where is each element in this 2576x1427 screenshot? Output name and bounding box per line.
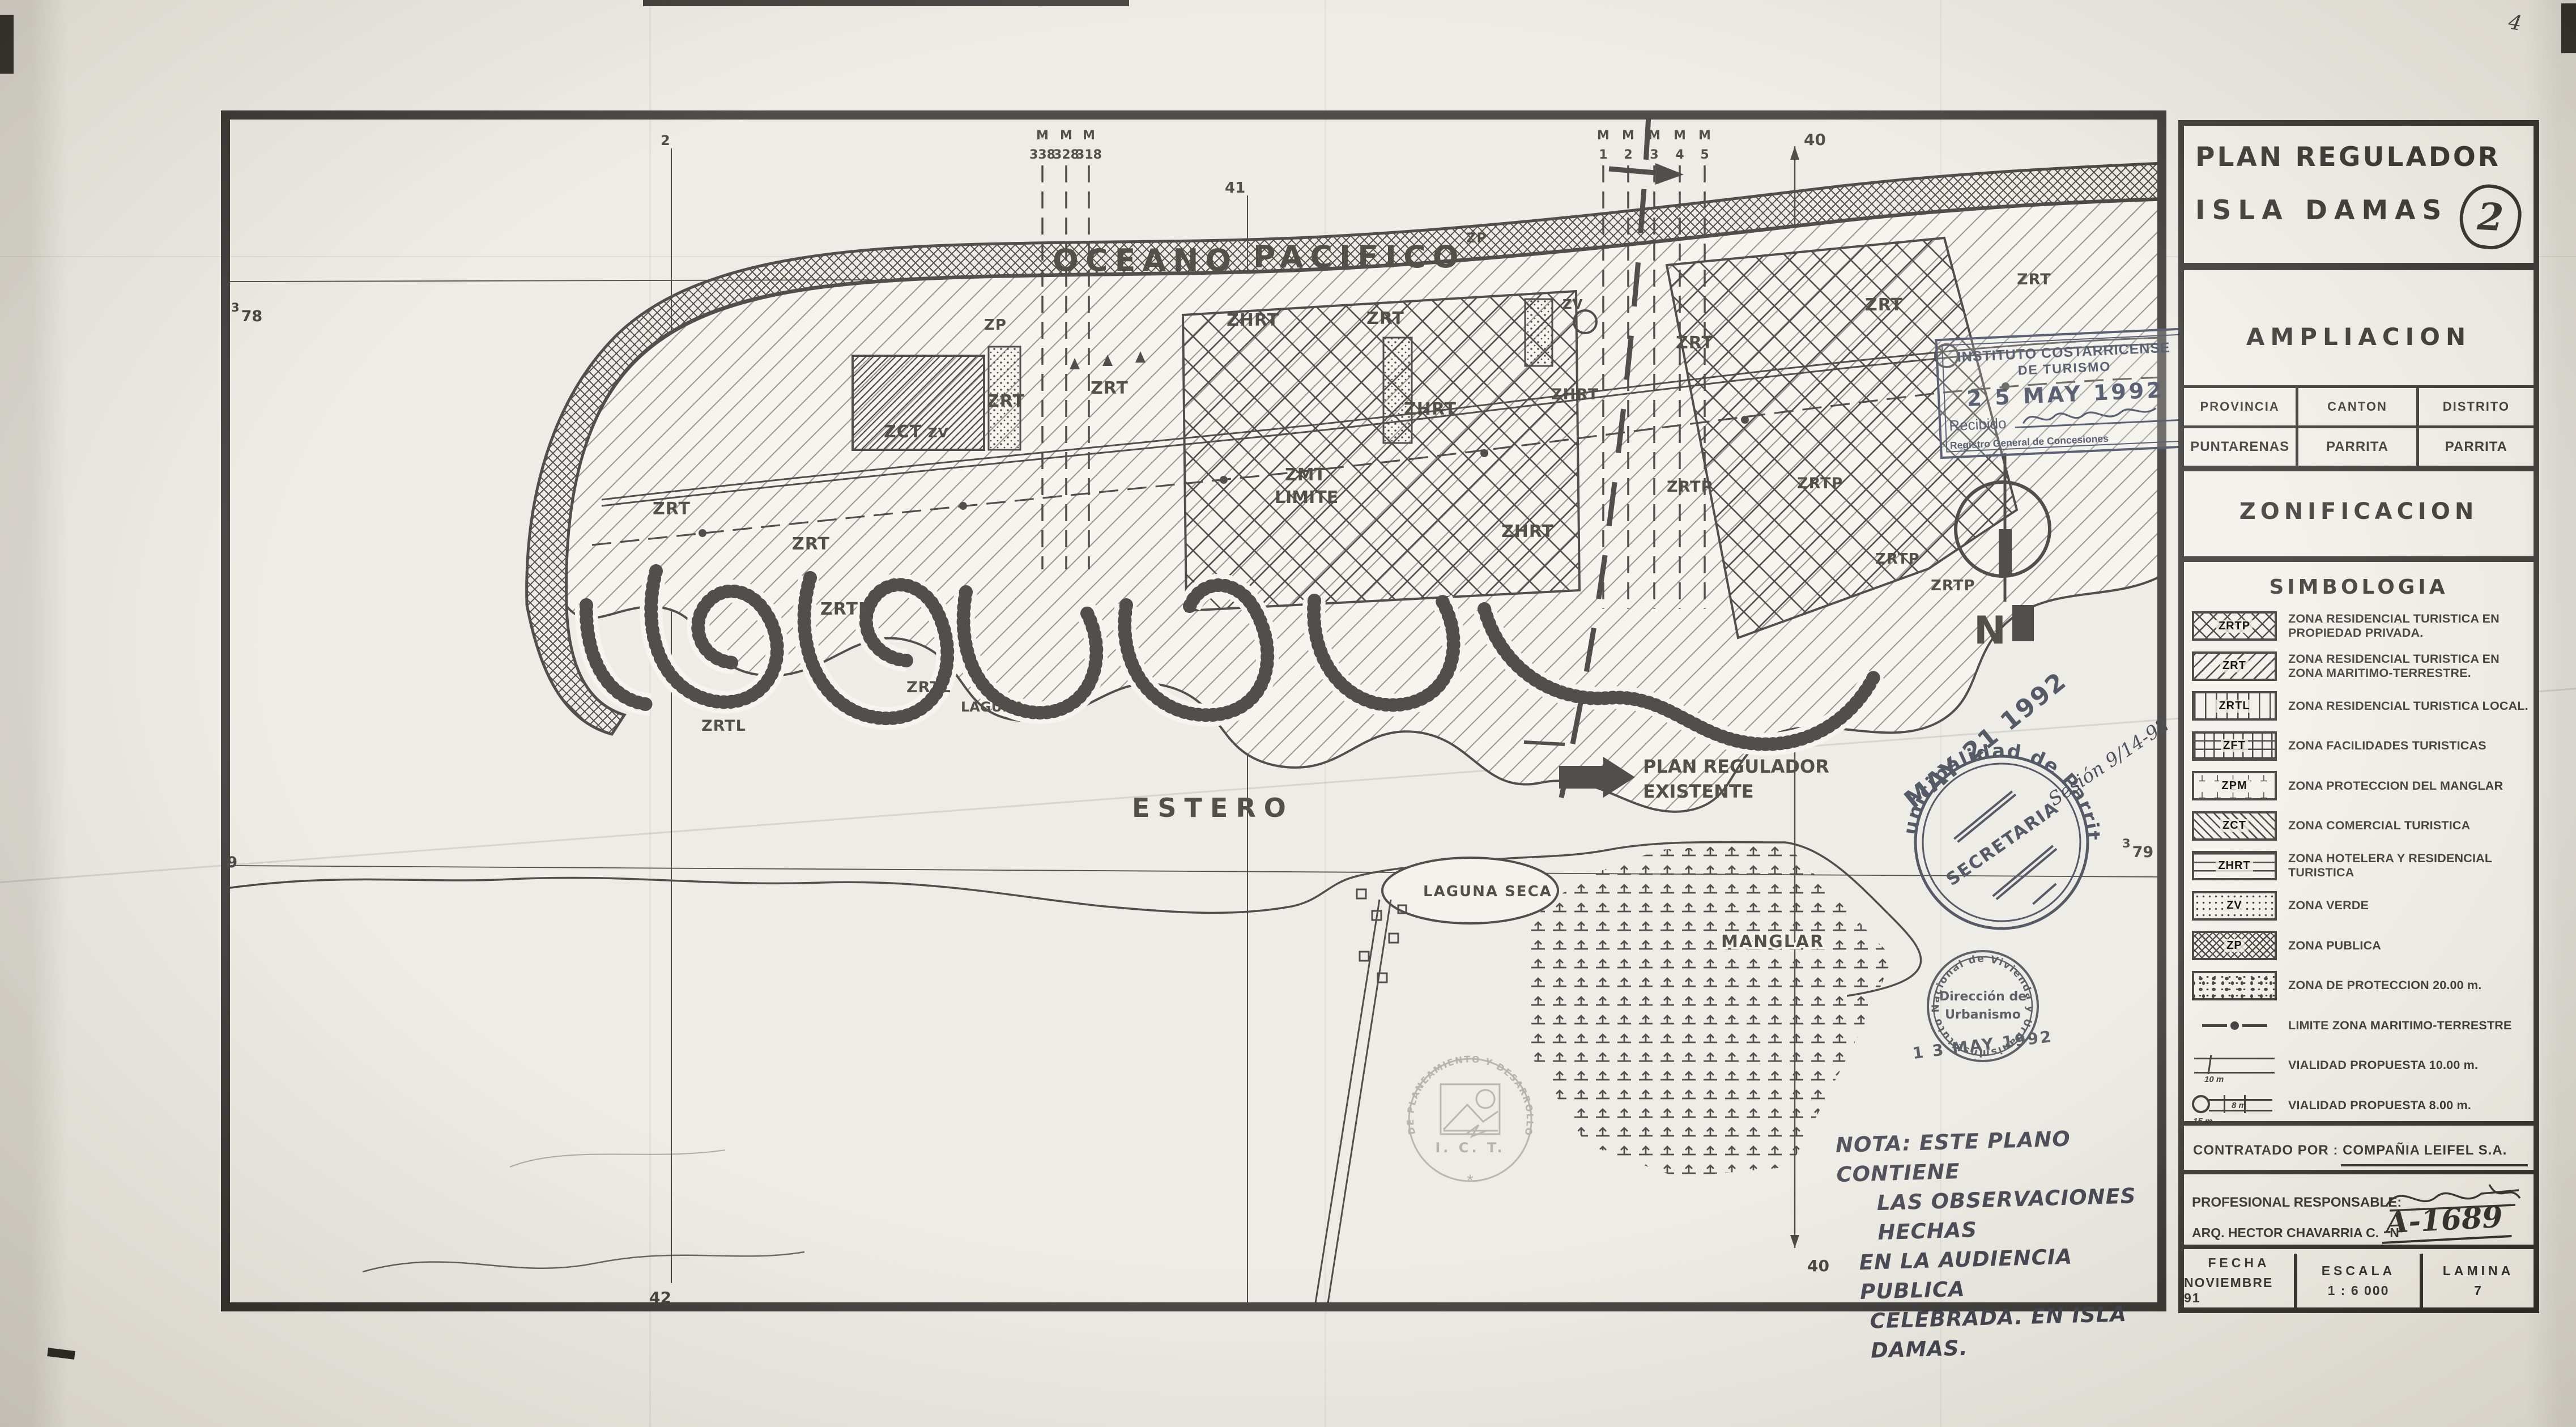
zone-label-zhrt: ZHRT bbox=[1404, 399, 1457, 419]
lamina-cell: LAMINA 7 bbox=[2423, 1254, 2534, 1307]
legend-desc: ZONA RESIDENCIAL TURISTICA EN ZONA MARIT… bbox=[2288, 652, 2528, 680]
zone-label-zrt: ZRT bbox=[1865, 295, 1903, 315]
escala-cell: ESCALA 1 : 6 000 bbox=[2297, 1254, 2423, 1307]
mojon-letter: M bbox=[1674, 129, 1686, 143]
ampliacion-section: AMPLIACION PROVINCIA CANTON DISTRITO PUN… bbox=[2184, 278, 2534, 471]
legend-desc: ZONA FACILIDADES TURISTICAS bbox=[2288, 739, 2486, 753]
legend-swatch-ZRTL: ZRTL bbox=[2192, 691, 2277, 721]
zone-block-zhrt bbox=[1183, 291, 1579, 611]
stream bbox=[510, 1150, 725, 1167]
fecha-cell: FECHA NOVIEMBRE 91 bbox=[2184, 1254, 2297, 1307]
legend-swatch-ZFT: ZFT bbox=[2192, 731, 2277, 761]
svg-text:Urbanismo: Urbanismo bbox=[1945, 1008, 2021, 1022]
zone-label-zrt: ZRT bbox=[792, 534, 830, 554]
legend-row: ZPZONA PUBLICA bbox=[2192, 926, 2528, 966]
legend-desc: ZONA COMERCIAL TURISTICA bbox=[2288, 819, 2470, 833]
scan-edge-mark bbox=[47, 1348, 75, 1360]
legend-code: ZRTL bbox=[2216, 700, 2252, 713]
legend-swatch-limite bbox=[2192, 1011, 2277, 1040]
legend-row: ⊥ ⊥ ⊥ ⊥ ⊥ ⊥ ⊥ ⊥ ⊥ ⊥ ⊥ ⊥ ⊥ ⊥ ⊥ ⊥ ⊥ ⊥ ⊥ ⊥ … bbox=[2192, 766, 2528, 806]
legend-row: ZRTLZONA RESIDENCIAL TURISTICA LOCAL. bbox=[2192, 686, 2528, 726]
plan-title: PLAN REGULADOR bbox=[2195, 142, 2501, 173]
legend-row: ZVZONA VERDE bbox=[2192, 886, 2528, 926]
zmt-limite-label: ZMT bbox=[1285, 465, 1326, 485]
table-header: CANTON bbox=[2298, 388, 2419, 428]
zone-label-zrtp: ZRTP bbox=[1797, 475, 1843, 492]
legend-swatch-blobs bbox=[2192, 971, 2277, 1000]
legend-code: ZRTP bbox=[2216, 620, 2253, 633]
legend-code: ZHRT bbox=[2216, 859, 2253, 872]
legend-code: ZRT bbox=[2220, 659, 2249, 672]
scanned-plan-sheet: 4 bbox=[0, 0, 2576, 1427]
laguna-label: LAGUNA bbox=[961, 699, 1024, 715]
legend-row: ZHRTZONA HOTELERA Y RESIDENCIAL TURISTIC… bbox=[2192, 846, 2528, 886]
zone-label-zrt: ZRT bbox=[987, 391, 1025, 411]
estero-label: ESTERO bbox=[1132, 793, 1294, 823]
profesional-name: ARQ. HECTOR CHAVARRIA C. bbox=[2192, 1225, 2379, 1240]
table-cell: PUNTARENAS bbox=[2184, 428, 2298, 466]
legend-row: 10 mVIALIDAD PROPUESTA 10.00 m. bbox=[2192, 1046, 2528, 1086]
scan-edge-mark bbox=[0, 15, 14, 74]
svg-text:Dirección de: Dirección de bbox=[1939, 990, 2026, 1004]
legend-desc: VIALIDAD PROPUESTA 10.00 m. bbox=[2288, 1058, 2478, 1072]
scan-edge-mark bbox=[643, 0, 1129, 6]
svg-text:I. C. T.: I. C. T. bbox=[1435, 1140, 1505, 1156]
laguna-seca-label: LAGUNA SECA bbox=[1423, 883, 1552, 900]
zone-label-zrt: ZRT bbox=[1676, 333, 1714, 353]
mojon-number: 1 bbox=[1599, 148, 1607, 162]
coord-label: 378 bbox=[231, 301, 262, 325]
zone-label-zp: ZP bbox=[984, 317, 1007, 334]
mojon-number: 5 bbox=[1700, 148, 1709, 162]
grid-label: 41 bbox=[1225, 180, 1245, 197]
table-cell: PARRITA bbox=[2298, 428, 2419, 466]
compass-n: N bbox=[1974, 608, 2006, 653]
svg-text:DIRECCION DE PLANEAMIENTO Y DE: DIRECCION DE PLANEAMIENTO Y DESARROLLO T… bbox=[1382, 1032, 1535, 1143]
mojon-letter: M bbox=[1597, 129, 1610, 143]
section-heading: ZONIFICACION bbox=[2184, 499, 2534, 525]
manglar-field bbox=[1527, 842, 1892, 1177]
profesional-label: PROFESIONAL RESPONSABLE: bbox=[2192, 1195, 2402, 1211]
legend-desc: ZONA VERDE bbox=[2288, 898, 2369, 913]
manglar-label: MANGLAR bbox=[1721, 932, 1824, 952]
legend-desc: VIALIDAD PROPUESTA 8.00 m. bbox=[2288, 1098, 2471, 1113]
zone-label-zhrt: ZHRT bbox=[1501, 522, 1554, 542]
nota-text: NOTA: ESTE PLANO CONTIENE LAS OBSERVACIO… bbox=[1835, 1122, 2170, 1366]
stream bbox=[363, 1252, 804, 1272]
plan-existente-label: PLAN REGULADOR bbox=[1643, 756, 1829, 777]
stamp-ict-recibido: INSTITUTO COSTARRICENSE DE TURISMO 2 5 M… bbox=[1935, 327, 2196, 459]
legend-code: ZP bbox=[2224, 939, 2245, 952]
zone-label-zrt: ZRT bbox=[1366, 309, 1404, 329]
zone-label-zv: ZV bbox=[1562, 297, 1583, 312]
title-block-panel: PLAN REGULADOR ISLA DAMAS 2 AMPLIACION P… bbox=[2178, 120, 2539, 1313]
legend-desc: ZONA PROTECCION DEL MANGLAR bbox=[2288, 779, 2503, 793]
plan-existente-label: EXISTENTE bbox=[1643, 781, 1754, 802]
zone-label-zp: ZP bbox=[1466, 230, 1487, 246]
legend-swatch-ZV: ZV bbox=[2192, 891, 2277, 921]
stamp-ict-planeamiento: DIRECCION DE PLANEAMIENTO Y DESARROLLO T… bbox=[1382, 1032, 1558, 1208]
section-heading: AMPLIACION bbox=[2184, 323, 2534, 351]
mojon-letter: M bbox=[1060, 129, 1072, 143]
legend-swatch-ZRT: ZRT bbox=[2192, 651, 2277, 681]
legend-row: ZONA DE PROTECCION 20.00 m. bbox=[2192, 966, 2528, 1006]
footer-section: FECHA NOVIEMBRE 91 ESCALA 1 : 6 000 LAMI… bbox=[2184, 1254, 2534, 1307]
legend-code: ZCT bbox=[2220, 819, 2249, 832]
mojon-letter: M bbox=[1698, 129, 1711, 143]
zone-label-zrt: ZRT bbox=[653, 499, 691, 519]
mojon-number: 4 bbox=[1675, 148, 1684, 162]
grid-label: 40 bbox=[1804, 130, 1826, 149]
zone-label-zrt: ZRT bbox=[1091, 378, 1129, 398]
admin-table: PROVINCIA CANTON DISTRITO PUNTARENAS PAR… bbox=[2184, 385, 2534, 466]
mojon-number: 318 bbox=[1076, 148, 1102, 162]
zone-label-zrtp: ZRTP bbox=[820, 599, 871, 619]
mojon-letter: M bbox=[1036, 129, 1049, 143]
legend-swatch-ZPM: ⊥ ⊥ ⊥ ⊥ ⊥ ⊥ ⊥ ⊥ ⊥ ⊥ ⊥ ⊥ ⊥ ⊥ ⊥ ⊥ ⊥ ⊥ ⊥ ⊥ … bbox=[2192, 771, 2277, 800]
license-number: A-1689 bbox=[2380, 1199, 2511, 1244]
svg-text:SECRETARIA: SECRETARIA bbox=[1943, 798, 2063, 890]
zone-label-zrtp: ZRTP bbox=[1667, 478, 1713, 496]
zone-strip-zv bbox=[1525, 299, 1552, 366]
legend-desc: ZONA PUBLICA bbox=[2288, 939, 2381, 953]
zone-label-zrtp: ZRTP bbox=[1875, 551, 1920, 568]
grid-label: 2 bbox=[661, 133, 670, 148]
table-header: PROVINCIA bbox=[2184, 388, 2298, 428]
zone-label-zrtp: ZRTP bbox=[1931, 577, 1975, 594]
mojon-number: 2 bbox=[1624, 148, 1632, 162]
grid-label: 40 bbox=[1807, 1256, 1829, 1275]
stamp-star: * bbox=[1467, 1172, 1474, 1190]
handwritten-corner-number: 4 bbox=[2507, 10, 2524, 35]
ocean-label: OCEANO bbox=[1053, 242, 1238, 278]
legend-desc: ZONA HOTELERA Y RESIDENCIAL TURISTICA bbox=[2288, 851, 2528, 880]
scan-edge-mark bbox=[2561, 3, 2576, 53]
simbologia-section: SIMBOLOGIA ZRTPZONA RESIDENCIAL TURISTIC… bbox=[2184, 568, 2534, 1126]
zmt-limite-label: LIMITE bbox=[1275, 488, 1338, 508]
contratado-section: CONTRATADO POR : COMPAÑIA LEIFEL S.A. bbox=[2184, 1130, 2534, 1174]
stamp-invu: Instituto Nacional de Vivienda y Urbanis… bbox=[1904, 928, 2062, 1087]
legend-swatch-ZCT: ZCT bbox=[2192, 811, 2277, 841]
plan-title: ISLA DAMAS bbox=[2195, 195, 2448, 226]
zone-label-zrtl: ZRTL bbox=[701, 717, 746, 735]
signature-icon bbox=[2020, 398, 2162, 430]
legend-desc: ZONA DE PROTECCION 20.00 m. bbox=[2288, 978, 2482, 992]
mojon-letter: M bbox=[1083, 129, 1095, 143]
legend-swatch-road10: 10 m bbox=[2192, 1051, 2277, 1080]
legend-desc: LIMITE ZONA MARITIMO-TERRESTRE bbox=[2288, 1019, 2512, 1033]
legend-row: ZFTZONA FACILIDADES TURISTICAS bbox=[2192, 726, 2528, 766]
ict-logo-icon bbox=[1441, 1084, 1500, 1136]
legend-swatch-ZP: ZP bbox=[2192, 931, 2277, 960]
legend-code: ZV bbox=[2224, 899, 2245, 912]
mojon-number: 3 bbox=[1650, 148, 1658, 162]
mojon-letter: M bbox=[1622, 129, 1634, 143]
contratado-label: CONTRATADO POR : bbox=[2193, 1143, 2338, 1158]
legend-row: ZRTZONA RESIDENCIAL TURISTICA EN ZONA MA… bbox=[2192, 646, 2528, 687]
legend-row: LIMITE ZONA MARITIMO-TERRESTRE bbox=[2192, 1006, 2528, 1046]
coord-label: 379 bbox=[2122, 837, 2153, 861]
table-cell: PARRITA bbox=[2419, 428, 2534, 466]
section-heading: SIMBOLOGIA bbox=[2184, 576, 2534, 599]
contratado-value: COMPAÑIA LEIFEL S.A. bbox=[2343, 1143, 2507, 1158]
zone-label-zhrt: ZHRT bbox=[1551, 386, 1599, 403]
legend-swatch-ZRTP: ZRTP bbox=[2192, 611, 2277, 641]
title-section: PLAN REGULADOR ISLA DAMAS 2 bbox=[2184, 126, 2534, 270]
zone-label-zct: ZCT bbox=[884, 422, 922, 442]
ocean-label: PACIFICO bbox=[1253, 239, 1466, 275]
mojon-number: 338 bbox=[1029, 148, 1055, 162]
legend-swatch-road8: 15 m8 m bbox=[2192, 1091, 2277, 1120]
legend-row: ZCTZONA COMERCIAL TURISTICA bbox=[2192, 806, 2528, 846]
zonificacion-section: ZONIFICACION bbox=[2184, 477, 2534, 562]
legend-desc: ZONA RESIDENCIAL TURISTICA EN PROPIEDAD … bbox=[2288, 612, 2528, 640]
sheet-number-circle: 2 bbox=[2456, 181, 2524, 253]
zone-label-zhrt: ZHRT bbox=[1227, 310, 1279, 330]
legend: ZRTPZONA RESIDENCIAL TURISTICA EN PROPIE… bbox=[2192, 606, 2528, 1126]
legend-row: 15 m8 mVIALIDAD PROPUESTA 8.00 m. bbox=[2192, 1085, 2528, 1126]
zone-strip-zv bbox=[1383, 338, 1412, 443]
legend-code: ZPM bbox=[2219, 779, 2249, 793]
profesional-section: PROFESIONAL RESPONSABLE: ARQ. HECTOR CHA… bbox=[2184, 1179, 2534, 1249]
legend-row: ZRTPZONA RESIDENCIAL TURISTICA EN PROPIE… bbox=[2192, 606, 2528, 646]
legend-desc: ZONA RESIDENCIAL TURISTICA LOCAL. bbox=[2288, 699, 2528, 713]
zone-label-zrt: ZRT bbox=[2017, 271, 2051, 288]
legend-code: ZFT bbox=[2221, 739, 2248, 752]
zone-label-zrtl: ZRTL bbox=[906, 679, 951, 696]
zone-label-zv: ZV bbox=[928, 426, 948, 441]
table-header: DISTRITO bbox=[2419, 388, 2534, 428]
legend-swatch-ZHRT: ZHRT bbox=[2192, 851, 2277, 880]
